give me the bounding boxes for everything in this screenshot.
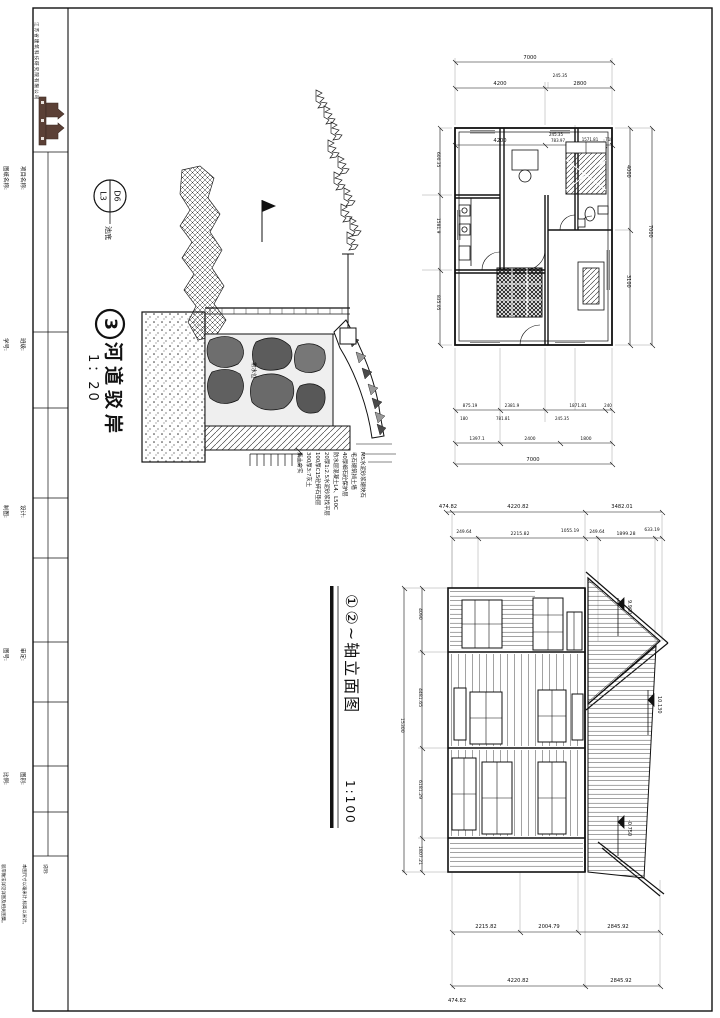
elev-dim: 4220.82 [507, 504, 528, 510]
general-note-1: 本图尺寸以毫米计,标高以米计。 [20, 864, 27, 927]
bubble-top-text: D6 [113, 190, 122, 201]
elevation-scale: 1:100 [343, 780, 357, 825]
plan-dim: 240 [604, 403, 612, 408]
sheet-scale-label: 比例: [1, 772, 9, 792]
plan-dim: 1800 [580, 436, 591, 442]
sheet-title-label: 图纸名称: [1, 166, 9, 190]
elev-dim: 633.19 [644, 527, 660, 533]
bed-symbol [566, 142, 606, 194]
stair-block [497, 268, 542, 317]
elev-dim: 1055.19 [561, 528, 579, 534]
sheet-scale-row: 比例: 1:100 [0, 772, 47, 792]
dwg-no-row: 图号: DWG NO. [0, 648, 47, 670]
elev-dim: 4090 [417, 608, 423, 620]
elev-dim: 2845.92 [610, 978, 631, 984]
plan-dim: 4000 [625, 165, 631, 178]
elev-dim: 474.82 [439, 504, 457, 510]
general-notes-title: 说明: [41, 864, 48, 927]
plan-dim: 600.35 [435, 152, 441, 168]
elev-dim: 474.82 [448, 998, 466, 1004]
elev-dim: 4220.82 [507, 978, 528, 984]
plan-dim: 4200 [493, 81, 506, 87]
bathroom-fixtures [578, 206, 608, 230]
level-value: -0.750 [626, 820, 632, 836]
drawing-label: 制图: [1, 505, 9, 528]
elev-dim: 3482.01 [611, 504, 632, 510]
detail-title: 河道驳岸 [101, 342, 128, 438]
general-note-2: 驳岸做法详见详图及相关图集。 [0, 864, 6, 927]
plan-dim: 2800 [573, 81, 586, 87]
floor-plan-drawing: 7000 4200 245.35 2800 4200 245.35 783.97… [395, 45, 715, 480]
plan-dim: 835.05 [435, 295, 441, 311]
elev-dim: 2845.92 [607, 924, 628, 930]
elev-dim: 1807.21 [417, 846, 423, 865]
company-logo-icon [39, 97, 64, 145]
elev-dim: 2004.79 [538, 924, 559, 930]
plan-dim: 2381.9 [505, 403, 520, 408]
elev-dim: 6181.29 [417, 780, 423, 799]
elev-dim: 249.64 [589, 529, 605, 535]
plan-dim: 245.35 [555, 416, 569, 421]
plan-dim: 7000 [523, 55, 536, 61]
water-level-marker [262, 200, 276, 242]
bubble-label: 池底 [104, 226, 113, 240]
water-level-label: 常水位 [250, 362, 258, 379]
plan-dim: 1571.81 [582, 137, 599, 142]
drawing-row: 制图: DRAWING [0, 505, 47, 528]
elevation-title-underline [330, 586, 334, 828]
plan-dim: 875.19 [463, 403, 478, 408]
detail-scale: 1：20 [85, 354, 104, 404]
wall-section [142, 254, 396, 462]
detail-reference-bubble: D6 L3 池底 [94, 180, 126, 240]
level-value: 10.130 [656, 696, 662, 714]
plan-dim: 783.97 [551, 138, 565, 143]
student-id-label: 学号: [1, 338, 9, 374]
company-name: 江苏省建筑科技研究院有限公司 [33, 22, 39, 100]
general-notes: 说明: 本图尺寸以毫米计,标高以米计。 驳岸做法详见详图及相关图集。 未尽事宜按… [0, 864, 62, 927]
detail-number: 3 [100, 318, 120, 330]
drawing-sheet: 江苏省建筑科技研究院有限公司 项目名称: PROJECT 图纸名称: TITLE… [0, 0, 720, 1018]
elev-dim: 4481.65 [417, 688, 423, 707]
elev-dim: 2215.82 [511, 531, 530, 537]
plan-dim: 2400 [524, 436, 535, 442]
plan-dim: 781.81 [496, 416, 510, 421]
elev-dim: 1899.28 [617, 531, 636, 537]
plan-dim: 3100 [625, 275, 631, 288]
elev-dim: 15300 [399, 718, 405, 733]
student-id-row: 学号: 24AG5B30203 [0, 338, 47, 374]
level-value: 9.900 [626, 600, 632, 614]
elev-dim: 2215.82 [475, 924, 496, 930]
elev-dim: 249.64 [456, 529, 472, 535]
plan-dim: 1397.1 [469, 436, 485, 442]
plan-dim: 7000 [526, 457, 539, 463]
plan-dim: 180 [460, 416, 468, 421]
plan-dim: 7000 [647, 225, 653, 238]
sheet-title-row: 图纸名称: TITLE [0, 166, 47, 190]
plan-dim: 1871.81 [569, 403, 587, 408]
plan-dim: 1581.9 [435, 218, 441, 234]
plan-dim: 245.35 [553, 73, 568, 78]
detail-number-bubble: 3 [96, 310, 124, 338]
bubble-bottom-text: L3 [99, 191, 108, 201]
elevation-drawing: ①②~轴立面图 1:100 474.82 4220.82 3482.01 2 [325, 480, 715, 1015]
elevation-title: ①②~轴立面图 [342, 594, 361, 714]
dwg-no-label: 图号: [1, 648, 9, 670]
